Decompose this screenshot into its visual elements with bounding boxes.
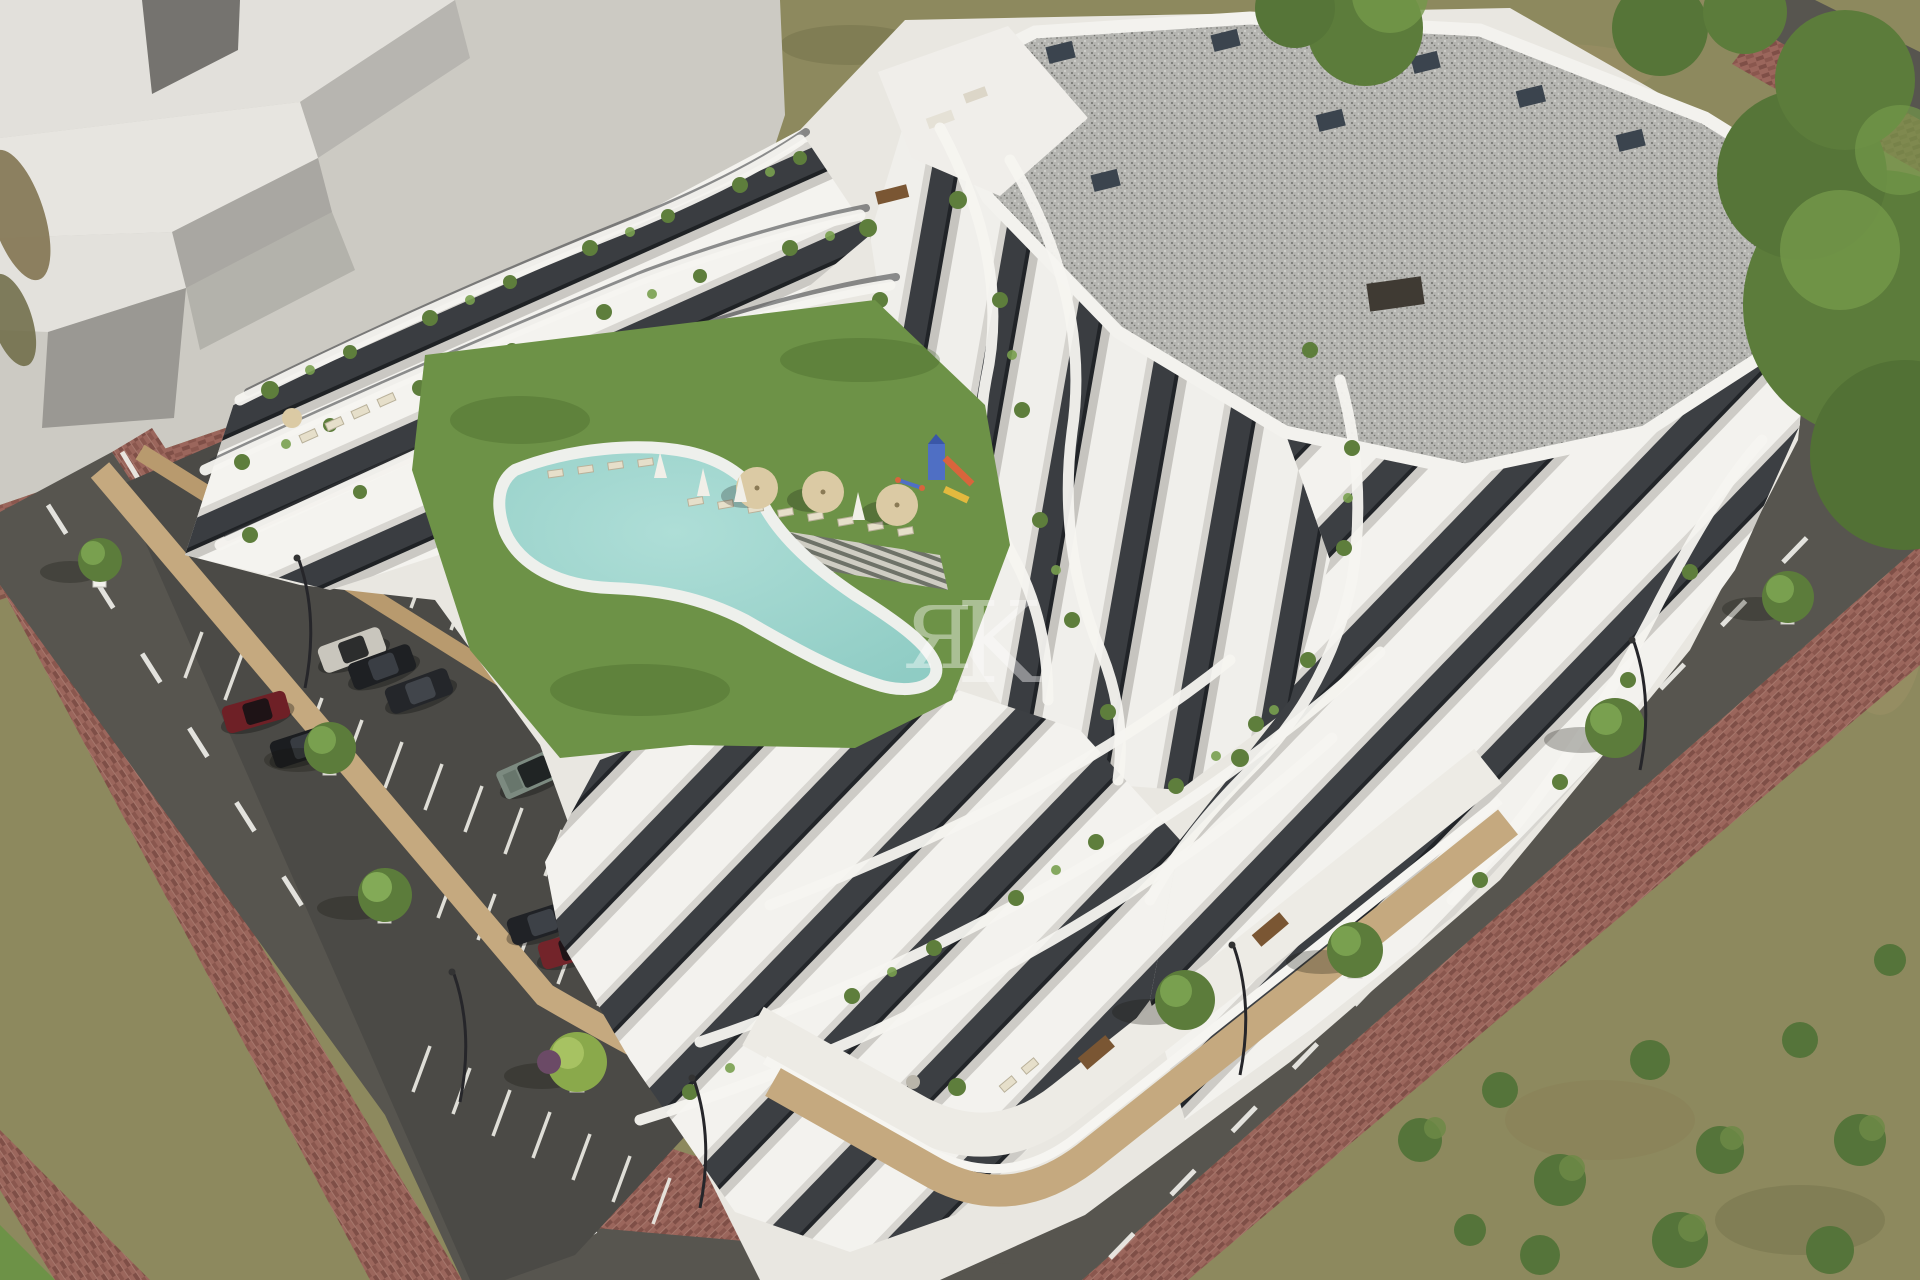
roof-parasol	[282, 408, 302, 428]
watermark-letter-right: K	[956, 579, 1042, 709]
aerial-render: Я K .wm{fill:#ffffff;}	[0, 0, 1920, 1280]
purple-bush	[537, 1050, 561, 1074]
render-canvas: Я K .wm{fill:#ffffff;}	[0, 0, 1920, 1280]
playground-tower	[928, 444, 945, 480]
